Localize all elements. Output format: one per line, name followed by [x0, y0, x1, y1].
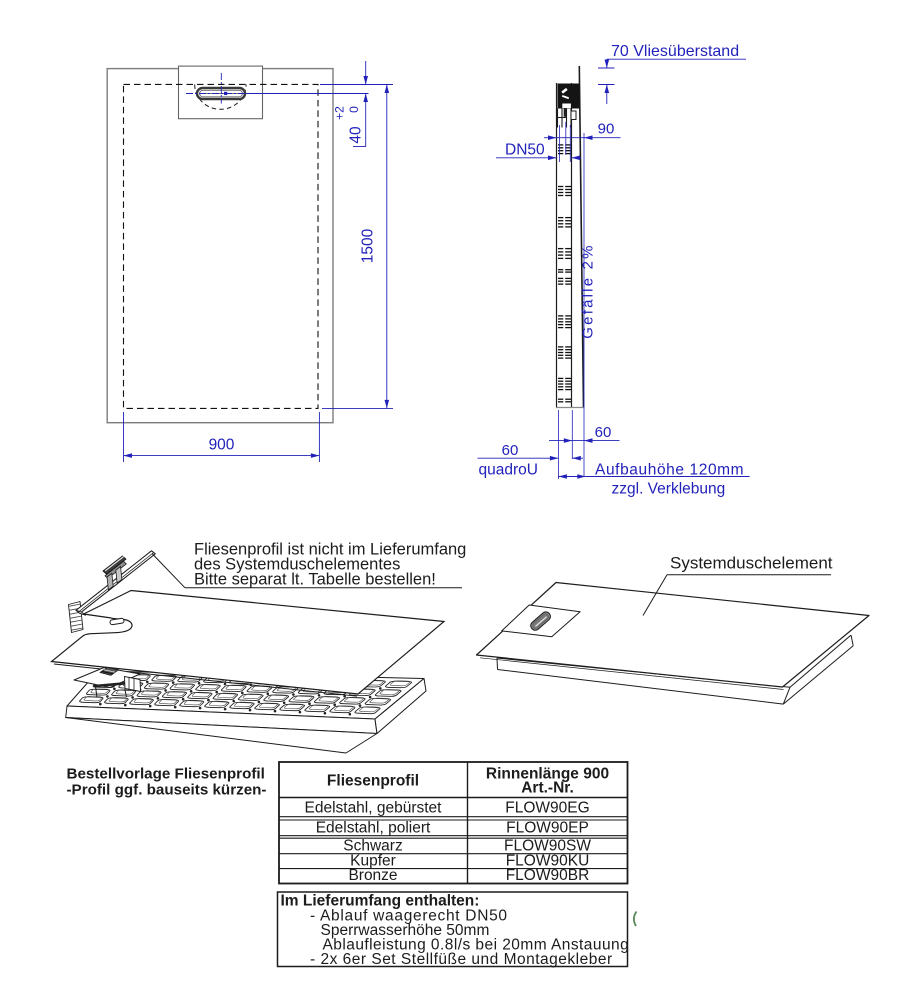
svg-text:900: 900 [209, 437, 235, 454]
svg-text:Systemduschelement: Systemduschelement [670, 554, 833, 573]
svg-text:FLOW90EP: FLOW90EP [506, 819, 589, 836]
svg-text:quadroU: quadroU [479, 462, 538, 479]
svg-text:90: 90 [598, 121, 615, 138]
svg-text:zzgl. Verklebung: zzgl. Verklebung [612, 481, 726, 498]
svg-text:Bestellvorlage Fliesenprofil: Bestellvorlage Fliesenprofil [67, 766, 265, 783]
svg-text:Art.-Nr.: Art.-Nr. [521, 780, 574, 797]
svg-text:Bitte separat lt. Tabelle best: Bitte separat lt. Tabelle bestellen! [194, 571, 436, 589]
svg-text:+2: +2 [333, 106, 347, 120]
svg-text:40: 40 [348, 126, 365, 144]
svg-text:60: 60 [502, 442, 519, 459]
svg-text:FLOW90EG: FLOW90EG [505, 800, 589, 817]
svg-text:FLOW90BR: FLOW90BR [506, 867, 590, 884]
svg-text:1500: 1500 [360, 228, 377, 263]
svg-text:DN50: DN50 [505, 142, 545, 159]
svg-text:0: 0 [347, 106, 361, 113]
svg-text:Edelstahl, gebürstet: Edelstahl, gebürstet [304, 800, 442, 817]
svg-text:70 Vliesüberstand: 70 Vliesüberstand [611, 43, 739, 60]
svg-text:Aufbauhöhe 120mm: Aufbauhöhe 120mm [595, 462, 744, 479]
svg-text:Fliesenprofil: Fliesenprofil [327, 773, 419, 790]
svg-text:-Profil ggf. bauseits kürzen-: -Profil ggf. bauseits kürzen- [67, 782, 267, 799]
svg-text:Bronze: Bronze [348, 867, 397, 884]
svg-text:- 2x 6er Set Stellfüße und Mon: - 2x 6er Set Stellfüße und Montagekleber [310, 951, 613, 968]
svg-text:60: 60 [595, 424, 612, 441]
svg-text:Edelstahl, poliert: Edelstahl, poliert [316, 819, 431, 836]
svg-text:Gefälle 2%: Gefälle 2% [580, 243, 597, 338]
